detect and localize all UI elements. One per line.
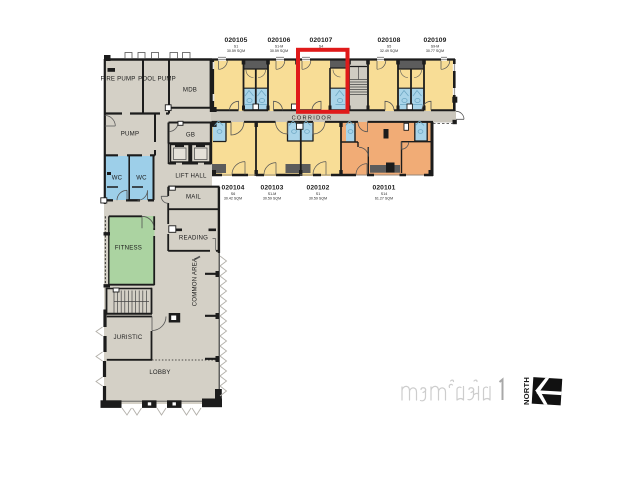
svg-text:JURISTIC: JURISTIC	[113, 334, 142, 341]
svg-text:READING: READING	[179, 235, 208, 242]
svg-text:30.59 SQM: 30.59 SQM	[227, 49, 245, 53]
svg-text:020105: 020105	[225, 37, 248, 44]
svg-text:020106: 020106	[268, 37, 291, 44]
svg-text:FITNESS: FITNESS	[115, 245, 142, 252]
svg-text:S14: S14	[381, 192, 387, 196]
svg-text:S5: S5	[387, 45, 391, 49]
svg-text:FIRE PUMP: FIRE PUMP	[101, 76, 136, 83]
svg-text:COMMON AREA: COMMON AREA	[192, 257, 199, 306]
svg-text:30.59 SQM: 30.59 SQM	[309, 197, 327, 201]
svg-text:30.42 SQM: 30.42 SQM	[224, 197, 242, 201]
svg-text:WC: WC	[112, 175, 123, 182]
svg-text:POOL PUMP: POOL PUMP	[138, 76, 176, 83]
svg-text:GB: GB	[186, 132, 195, 139]
svg-text:LOBBY: LOBBY	[149, 369, 170, 376]
svg-text:S1-M: S1-M	[275, 45, 284, 49]
svg-text:S1-M: S1-M	[268, 192, 277, 196]
svg-text:020107: 020107	[310, 37, 333, 44]
svg-text:MDB: MDB	[183, 87, 197, 94]
svg-text:020109: 020109	[424, 37, 447, 44]
svg-text:MAIL: MAIL	[186, 194, 201, 201]
svg-text:30.59 SQM: 30.59 SQM	[270, 49, 288, 53]
svg-text:30.59 SQM: 30.59 SQM	[263, 197, 281, 201]
svg-text:020102: 020102	[307, 185, 330, 192]
svg-text:020108: 020108	[378, 37, 401, 44]
svg-text:S6: S6	[231, 192, 235, 196]
svg-text:S9-M: S9-M	[431, 45, 440, 49]
svg-text:NORTH: NORTH	[522, 377, 531, 405]
svg-text:020104: 020104	[222, 185, 245, 192]
svg-text:61.27 SQM: 61.27 SQM	[375, 197, 393, 201]
svg-text:020103: 020103	[261, 185, 284, 192]
svg-text:WC: WC	[136, 175, 147, 182]
svg-text:32.49 SQM: 32.49 SQM	[380, 49, 398, 53]
svg-text:S1: S1	[234, 45, 238, 49]
svg-text:PUMP: PUMP	[121, 131, 139, 138]
svg-text:020101: 020101	[373, 185, 396, 192]
svg-text:30.77 SQM: 30.77 SQM	[426, 49, 444, 53]
svg-text:S1: S1	[316, 192, 320, 196]
svg-text:LIFT HALL: LIFT HALL	[175, 173, 207, 180]
svg-text:CORRIDOR: CORRIDOR	[292, 116, 333, 122]
